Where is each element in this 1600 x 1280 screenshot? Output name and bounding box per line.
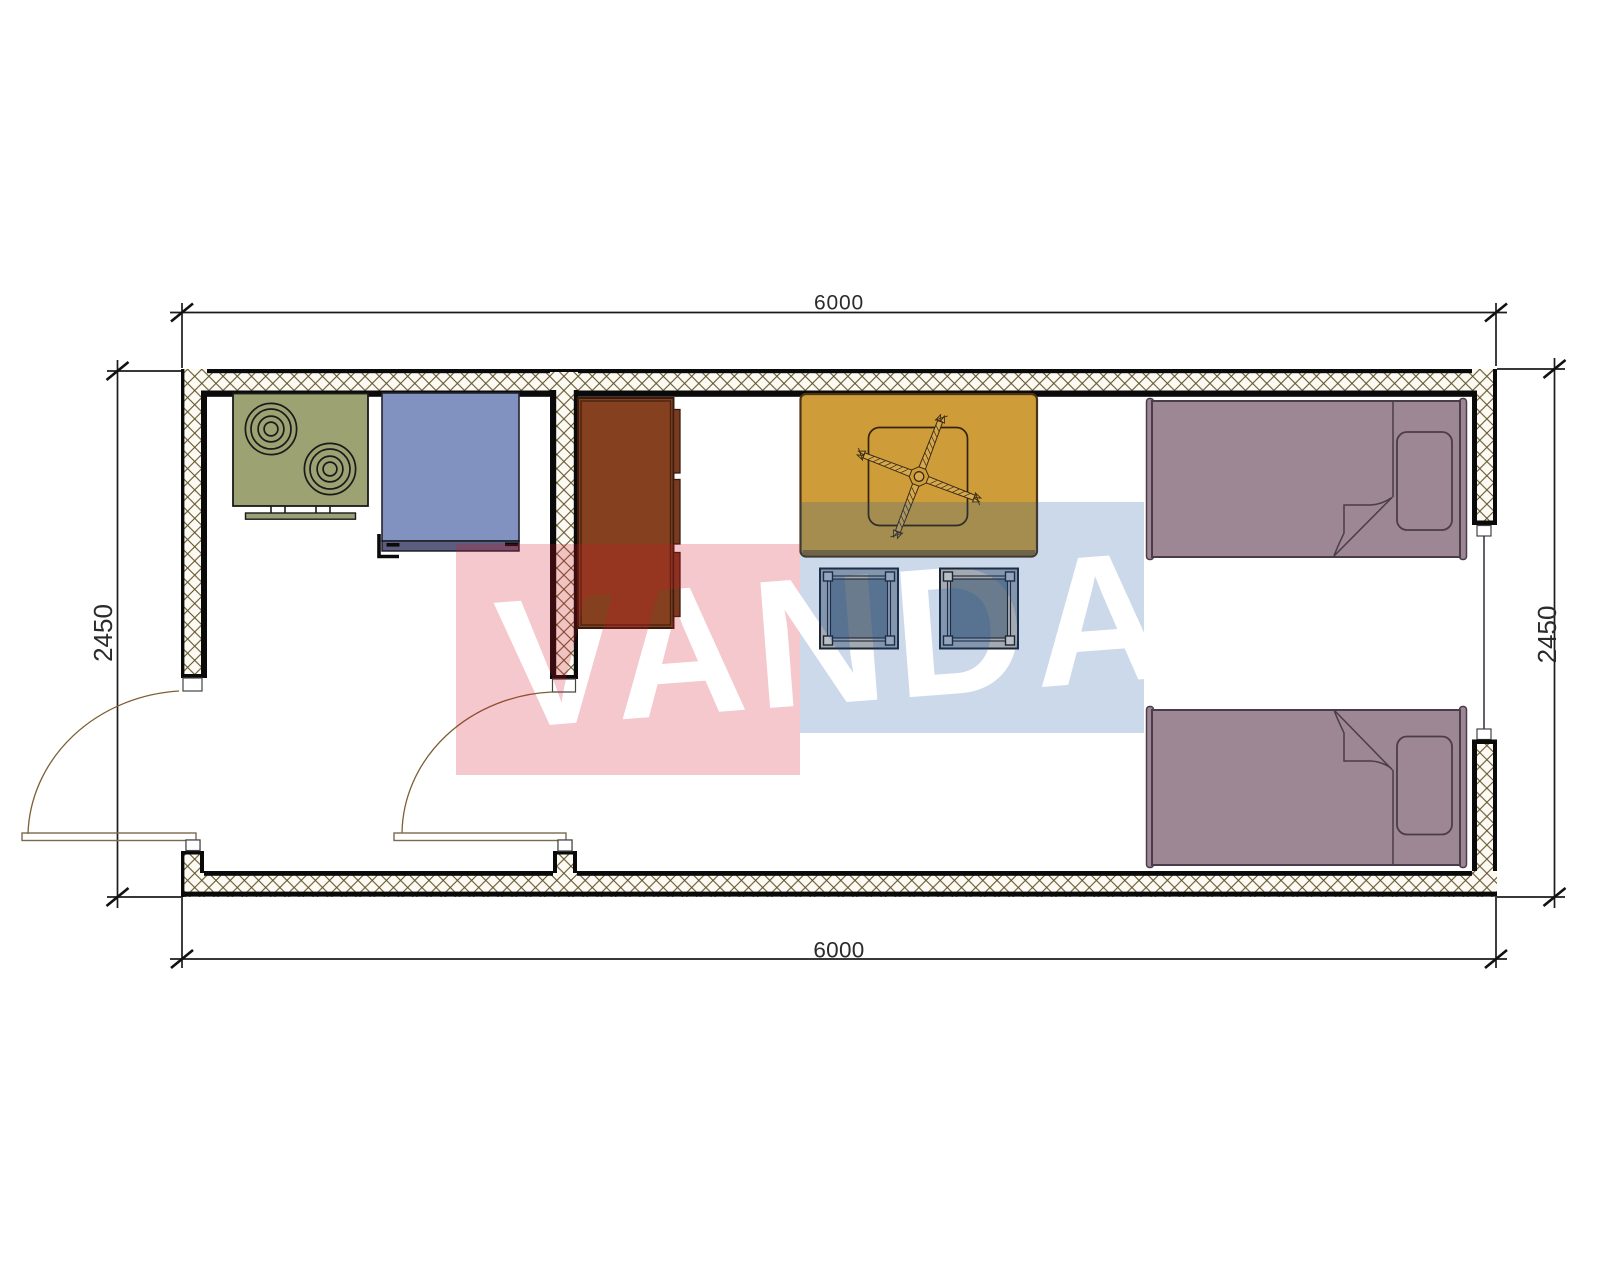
svg-text:6000: 6000	[814, 292, 864, 315]
svg-text:6000: 6000	[813, 938, 864, 963]
svg-text:2450: 2450	[1532, 606, 1562, 664]
svg-text:2450: 2450	[88, 604, 118, 662]
